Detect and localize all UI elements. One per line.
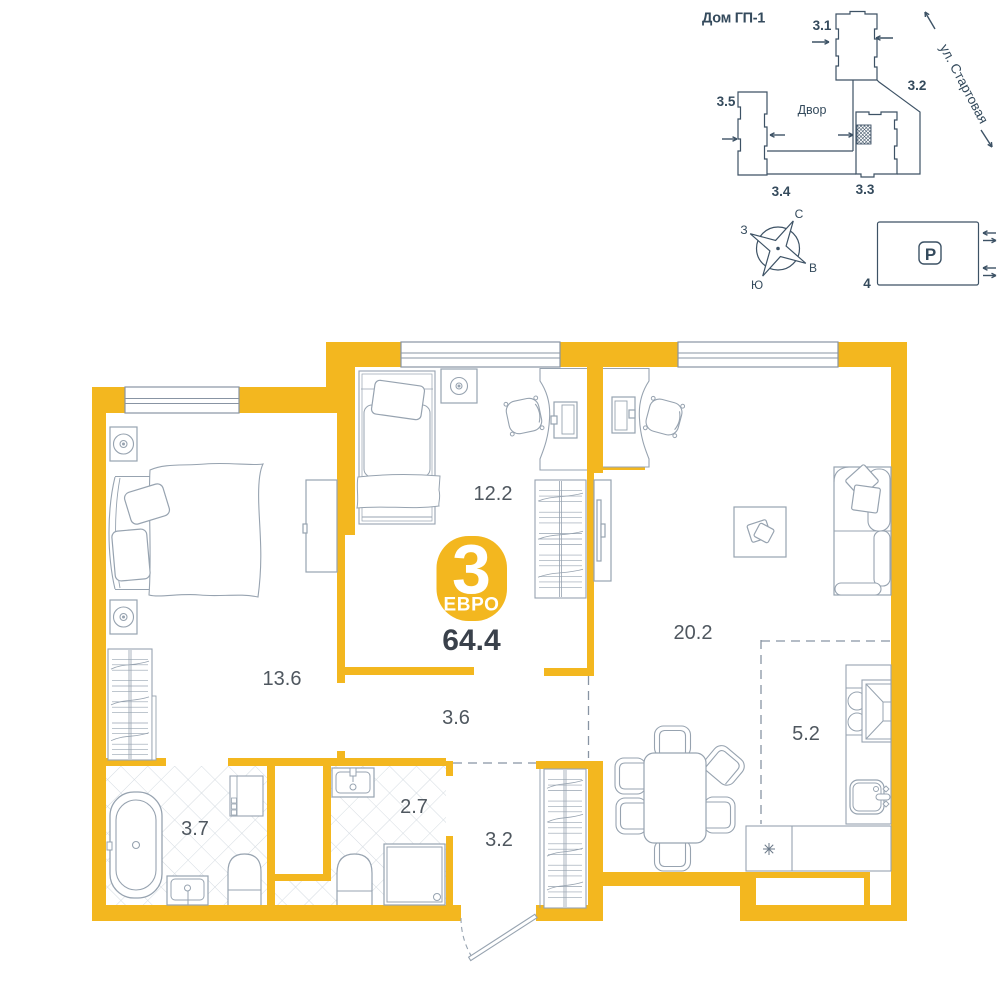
svg-text:ЕВРО: ЕВРО <box>444 595 500 616</box>
svg-text:Ю: Ю <box>751 278 763 292</box>
svg-text:13.6: 13.6 <box>263 668 302 690</box>
svg-text:3.4: 3.4 <box>772 184 791 199</box>
svg-text:ул. Стартовая: ул. Стартовая <box>937 42 991 126</box>
svg-text:В: В <box>809 261 817 275</box>
svg-text:64.4: 64.4 <box>442 624 501 657</box>
svg-text:С: С <box>795 207 804 221</box>
svg-text:3.1: 3.1 <box>813 18 832 33</box>
svg-text:2.7: 2.7 <box>400 796 428 818</box>
svg-text:Двор: Двор <box>798 103 827 117</box>
svg-text:12.2: 12.2 <box>474 483 513 505</box>
svg-text:4: 4 <box>863 276 871 291</box>
svg-text:3.2: 3.2 <box>485 829 513 851</box>
svg-text:5.2: 5.2 <box>792 723 820 745</box>
svg-text:3.7: 3.7 <box>181 818 209 840</box>
svg-text:20.2: 20.2 <box>674 622 713 644</box>
svg-text:Дом ГП-1: Дом ГП-1 <box>702 11 765 27</box>
svg-text:3.3: 3.3 <box>856 182 875 197</box>
svg-text:3.6: 3.6 <box>442 707 470 729</box>
svg-text:P: P <box>925 245 936 264</box>
svg-text:3.5: 3.5 <box>717 94 736 109</box>
svg-text:З: З <box>740 223 747 237</box>
svg-text:3.2: 3.2 <box>908 78 927 93</box>
